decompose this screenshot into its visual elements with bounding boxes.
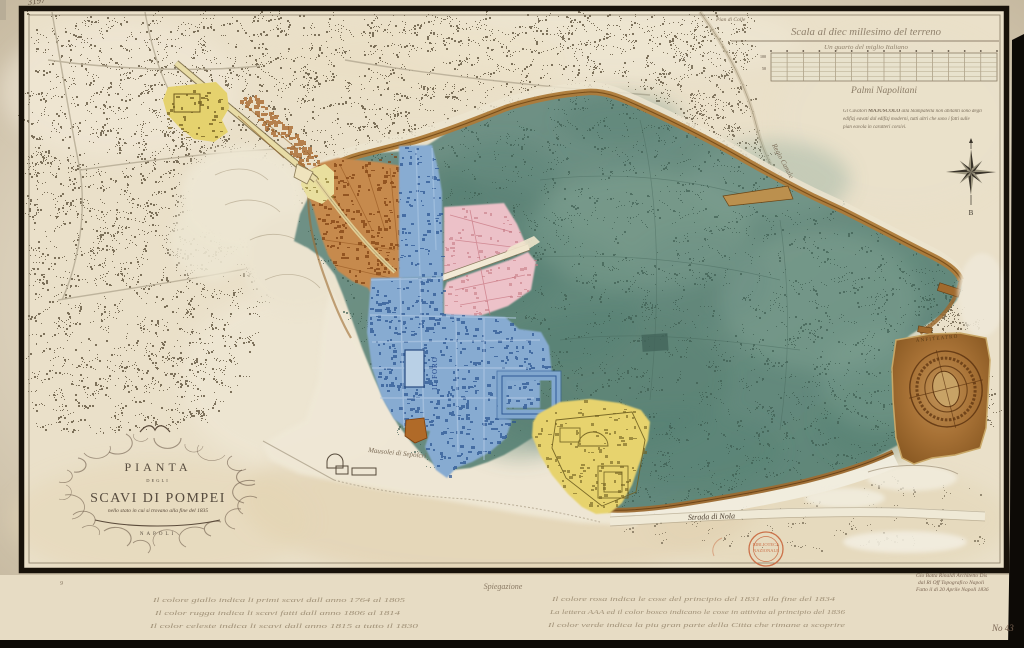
svg-text:NAZIONALE: NAZIONALE — [753, 548, 779, 553]
svg-text:Il colore giallo indica li pri: Il colore giallo indica li primi scavi d… — [151, 597, 406, 604]
svg-text:Gio Batta Rinaldi Architetto D: Gio Batta Rinaldi Architetto Dis — [916, 573, 987, 579]
svg-text:Gl Cavatori MAJUSCOLO alla Sta: Gl Cavatori MAJUSCOLO alla Stampatella n… — [843, 109, 983, 114]
svg-text:BIBLIOTECA: BIBLIOTECA — [753, 542, 780, 547]
svg-text:50: 50 — [762, 66, 766, 71]
svg-text:9: 9 — [60, 581, 63, 587]
svg-text:Un quarto del miglio Italiano: Un quarto del miglio Italiano — [824, 45, 908, 51]
svg-text:pian eavola in caratteri corsi: pian eavola in caratteri corsivi. — [842, 125, 906, 130]
svg-text:Scala al diec millesimo del te: Scala al diec millesimo del terreno — [791, 26, 941, 38]
svg-text:Il color celeste indica li sca: Il color celeste indica li scavi dall an… — [148, 623, 419, 630]
svg-text:edifizj eavati dal edifizj mod: edifizj eavati dal edifizj moderni, tutt… — [843, 117, 970, 122]
svg-text:B: B — [969, 209, 974, 217]
svg-text:Strada di Nola: Strada di Nola — [688, 511, 735, 522]
svg-text:SCAVI DI POMPEI: SCAVI DI POMPEI — [90, 491, 226, 506]
svg-text:Pian di Colle: Pian di Colle — [715, 17, 746, 23]
svg-text:NAPOLI: NAPOLI — [140, 532, 176, 537]
svg-text:nello stato in cui si trovano: nello stato in cui si trovano alla fine … — [108, 507, 208, 514]
svg-text:Il color verde indica la piu g: Il color verde indica la piu gran parte … — [546, 622, 845, 629]
svg-text:Il colore rosa indica le cose: Il colore rosa indica le cose del princi… — [550, 596, 836, 603]
svg-text:La lettera AAA ed il color bos: La lettera AAA ed il color bosco indican… — [549, 609, 846, 616]
svg-text:Spiegazione: Spiegazione — [484, 582, 523, 591]
svg-text:PIANTA: PIANTA — [124, 460, 191, 474]
svg-text:Fatto il di 20 Aprile Napoli 1: Fatto il di 20 Aprile Napoli 1836 — [915, 587, 989, 593]
svg-text:Il color rugga indica li scavi: Il color rugga indica li scavi fatti dal… — [153, 610, 401, 617]
svg-text:IL FORO: IL FORO — [431, 356, 439, 390]
svg-text:100: 100 — [760, 54, 766, 59]
svg-text:No 43: No 43 — [991, 623, 1014, 633]
svg-text:dal Rl Off Topografico Napoli: dal Rl Off Topografico Napoli — [918, 579, 985, 586]
svg-text:DEGLI: DEGLI — [146, 478, 170, 483]
svg-text:Palmi Napolitani: Palmi Napolitani — [850, 85, 918, 95]
